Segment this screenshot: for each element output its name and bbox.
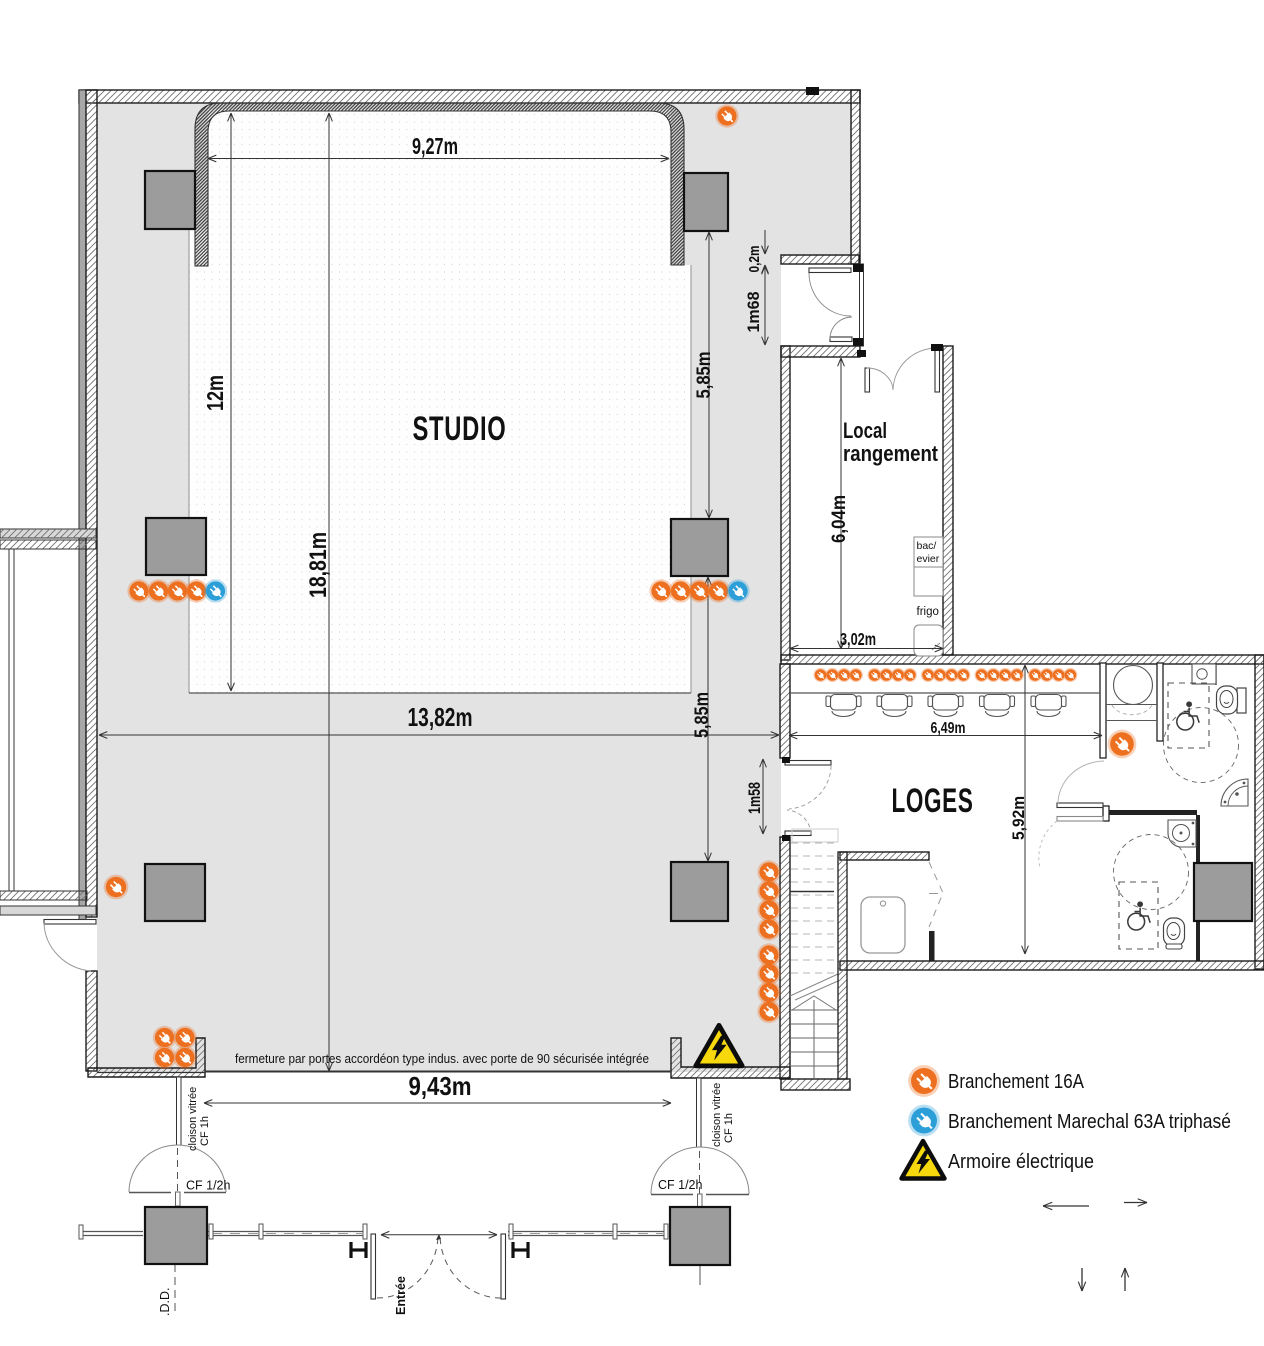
svg-text:0,2m: 0,2m	[746, 246, 763, 273]
svg-text:5,85m: 5,85m	[694, 352, 715, 399]
svg-text:evier: evier	[917, 553, 940, 565]
svg-text:Armoire électrique: Armoire électrique	[948, 1150, 1094, 1173]
svg-text:5,85m: 5,85m	[692, 692, 713, 738]
svg-text:18,81m: 18,81m	[305, 532, 332, 598]
svg-text:Branchement 16A: Branchement 16A	[948, 1070, 1084, 1093]
svg-text:13,82m: 13,82m	[408, 702, 473, 732]
svg-text:6,04m: 6,04m	[829, 495, 850, 543]
svg-text:.D.D.: .D.D.	[158, 1288, 172, 1316]
svg-text:Local: Local	[843, 418, 887, 443]
svg-text:LOGES: LOGES	[892, 782, 974, 820]
svg-text:frigo: frigo	[917, 606, 939, 618]
svg-text:1m58: 1m58	[746, 782, 764, 814]
svg-text:cloison vitrée: cloison vitrée	[187, 1087, 199, 1151]
svg-text:fermeture par portes accordéon: fermeture par portes accordéon type indu…	[235, 1052, 649, 1066]
svg-text:12m: 12m	[202, 375, 228, 411]
svg-text:1m68: 1m68	[745, 292, 763, 333]
svg-text:CF 1/2h: CF 1/2h	[658, 1178, 703, 1192]
svg-text:CF 1/2h: CF 1/2h	[186, 1179, 231, 1193]
svg-text:rangement: rangement	[843, 441, 939, 466]
svg-text:CF 1h: CF 1h	[723, 1113, 735, 1143]
svg-text:bac/: bac/	[917, 540, 937, 552]
svg-text:9,43m: 9,43m	[409, 1071, 472, 1101]
svg-text:STUDIO: STUDIO	[413, 410, 507, 448]
svg-text:Entrée: Entrée	[394, 1276, 408, 1315]
svg-text:CF 1h: CF 1h	[199, 1116, 211, 1146]
svg-text:Branchement Marechal 63A triph: Branchement Marechal 63A triphasé	[948, 1110, 1231, 1133]
svg-text:cloison vitrée: cloison vitrée	[711, 1083, 723, 1147]
svg-text:3,02m: 3,02m	[840, 629, 876, 649]
svg-text:6,49m: 6,49m	[931, 720, 966, 737]
svg-text:5,92m: 5,92m	[1010, 796, 1028, 840]
svg-text:9,27m: 9,27m	[412, 133, 458, 159]
